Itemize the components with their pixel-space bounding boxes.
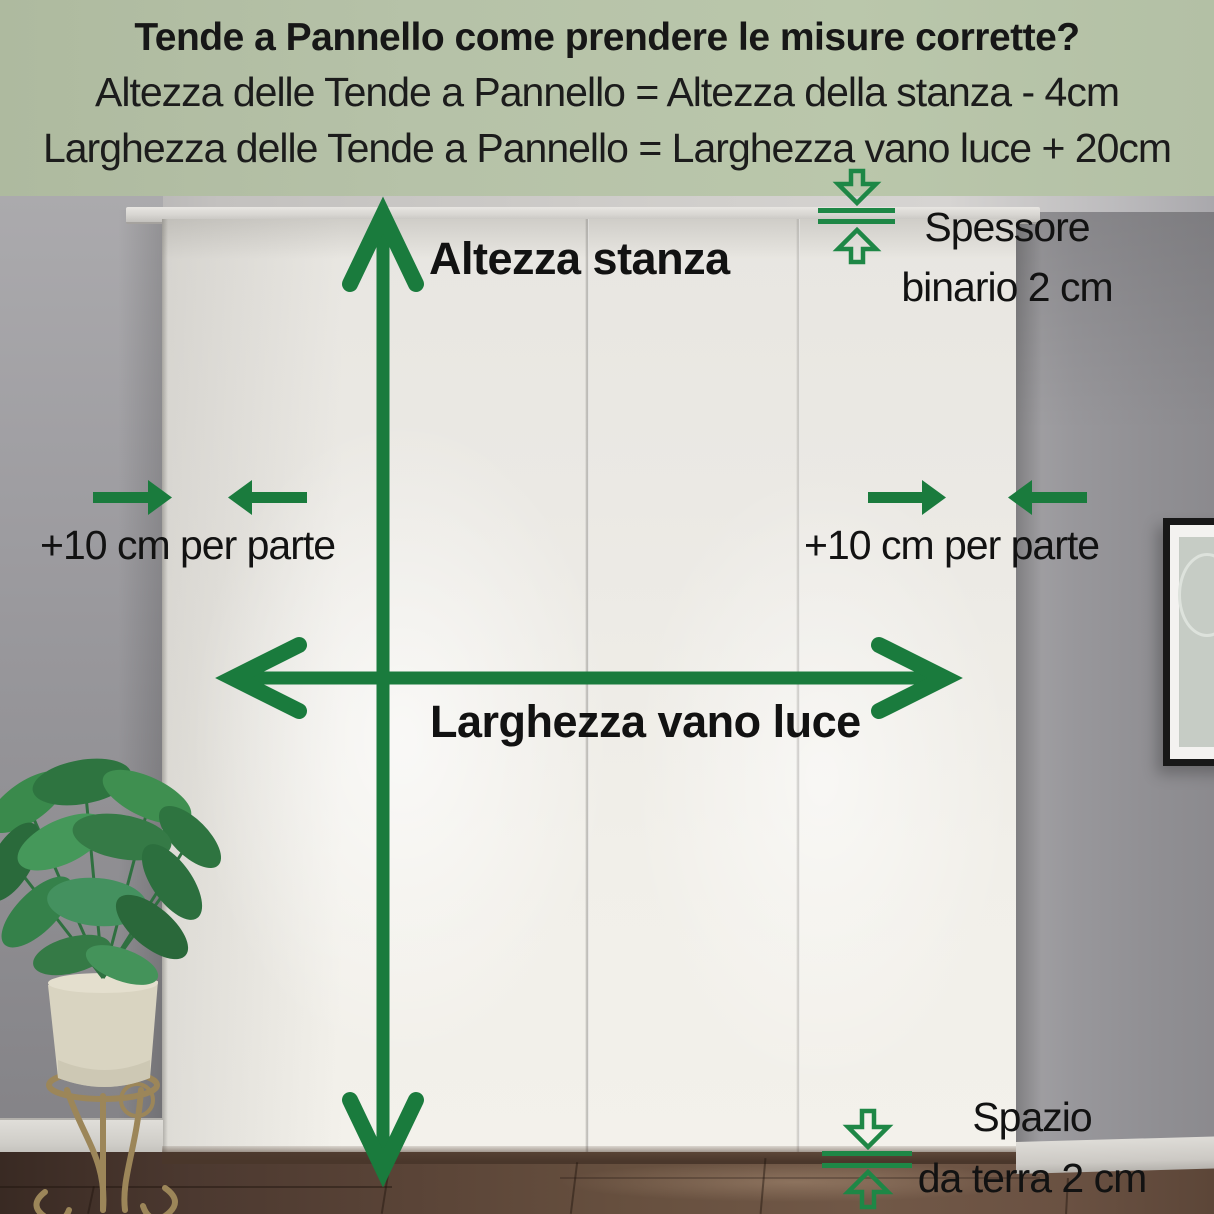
room-height-label: Altezza stanza (429, 235, 730, 282)
side-allowance-left-label: +10 cm per parte (40, 524, 335, 567)
floor-gap-label: Spazio da terra 2 cm (902, 1096, 1162, 1200)
opening-width-label: Larghezza vano luce (430, 698, 861, 745)
track-thickness-label-line1: Spessore (882, 206, 1132, 249)
floor-gap-indicator-icon (822, 1111, 912, 1207)
side-allowance-right-label: +10 cm per parte (804, 524, 1099, 567)
measurement-overlay (0, 0, 1214, 1214)
vertical-double-arrow-icon (350, 215, 416, 1169)
inward-arrows-left-icon (93, 480, 307, 515)
floor-gap-label-line1: Spazio (902, 1096, 1162, 1139)
track-thickness-label-line2: binario 2 cm (882, 266, 1132, 309)
track-thickness-label: Spessore binario 2 cm (882, 206, 1132, 309)
floor-gap-label-line2: da terra 2 cm (902, 1157, 1162, 1200)
infographic-canvas: Tende a Pannello come prendere le misure… (0, 0, 1214, 1214)
inward-arrows-right-icon (868, 480, 1087, 515)
